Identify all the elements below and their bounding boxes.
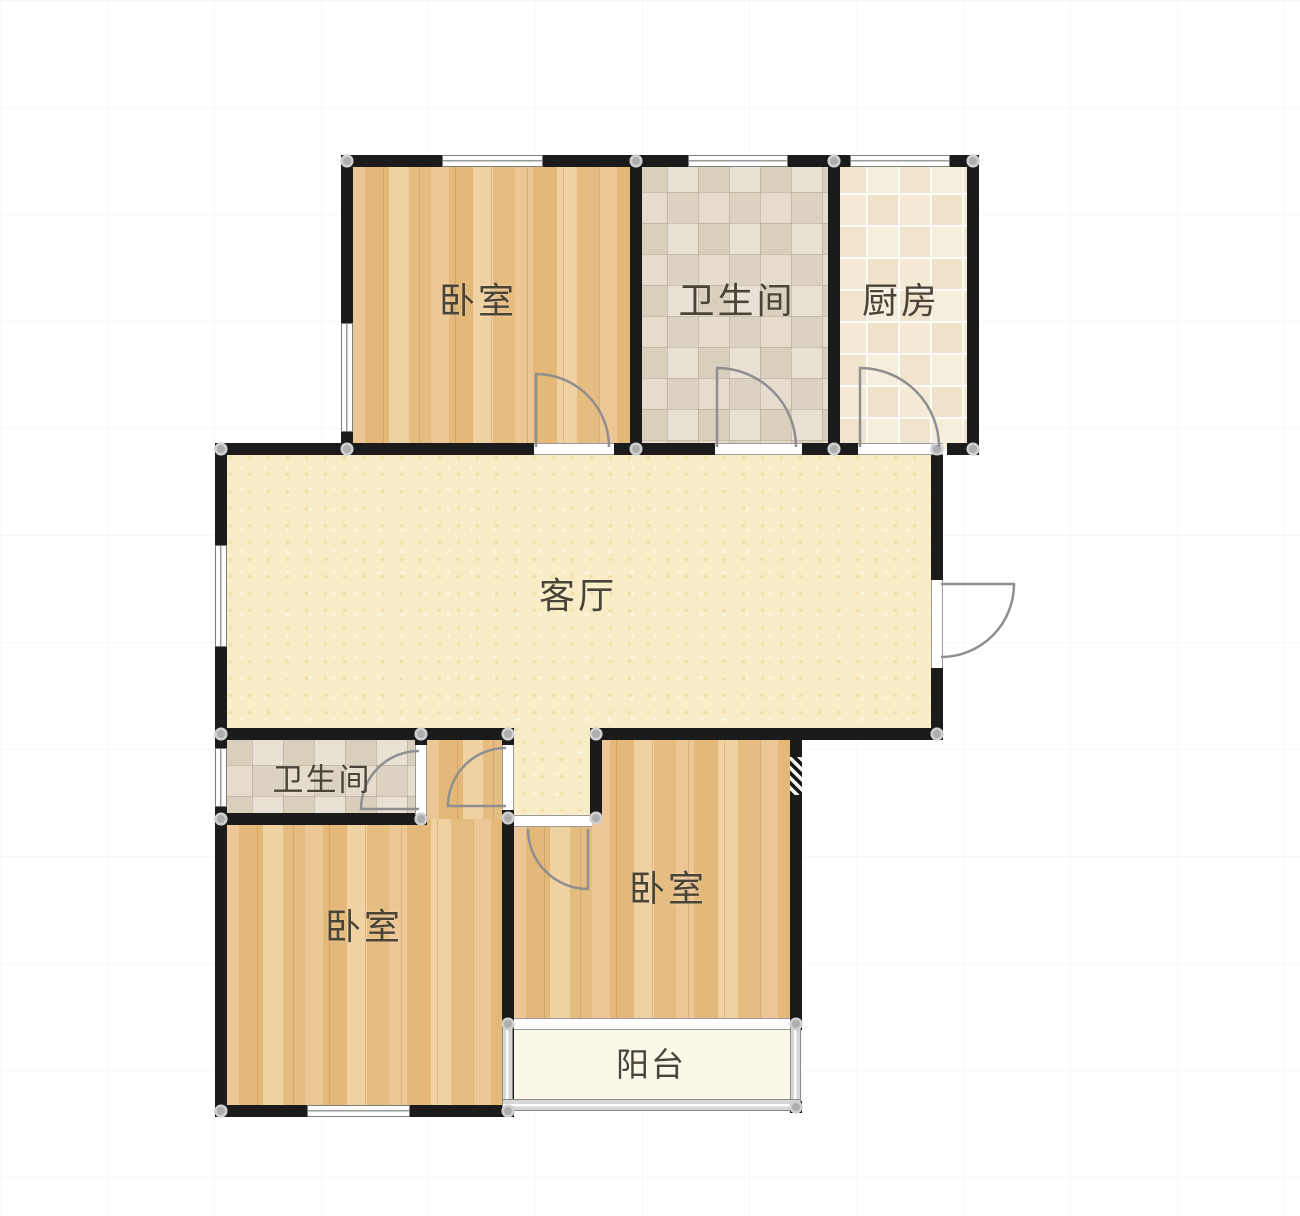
doorway-bedroom1	[534, 443, 614, 455]
window-balcony-bottom	[502, 1099, 801, 1111]
flue-hatch	[790, 757, 802, 795]
room-label-living-room: 客厅	[539, 567, 617, 619]
doorway-balcony	[514, 1018, 790, 1030]
wall-joint	[502, 728, 515, 741]
wall-joint	[502, 812, 515, 825]
window-bathroom2-left	[215, 748, 227, 807]
wall-joint	[590, 728, 603, 741]
window-balcony-right	[790, 1024, 801, 1101]
wall-joint	[790, 1101, 803, 1114]
room-label-bedroom-lower-right: 卧室	[629, 860, 707, 912]
wall-living-top-a	[215, 443, 534, 455]
wall-joint	[828, 155, 841, 168]
room-label-kitchen: 厨房	[862, 272, 940, 324]
doorway-bedroom3	[514, 815, 592, 827]
wall-joint	[215, 813, 228, 826]
wall-joint	[630, 443, 643, 456]
window-bathroom1-top	[688, 155, 788, 167]
window-bedroom2-bottom	[307, 1105, 410, 1117]
wall-kitchen-right	[967, 155, 979, 455]
room-label-bathroom-lower: 卫生间	[273, 755, 372, 800]
room-label-bedroom-lower-left: 卧室	[325, 898, 403, 950]
wall-hall-right	[590, 728, 602, 821]
wall-joint	[502, 1018, 515, 1031]
wall-joint	[215, 728, 228, 741]
window-living-left	[215, 545, 227, 647]
room-floor-bedroom-lower-left-strip	[421, 734, 508, 825]
wall-living-bottom-b	[592, 728, 943, 740]
wall-joint	[630, 155, 643, 168]
wall-joint	[341, 155, 354, 168]
wall-joint	[590, 812, 603, 825]
wall-joint	[790, 1018, 803, 1031]
room-label-balcony: 阳台	[616, 1038, 686, 1086]
floor-plan-canvas: 卧室 卫生间 厨房 客厅 卫生间 卧室 卧室 阳台	[0, 0, 1300, 1216]
doorway-bathroom2	[415, 745, 427, 815]
door-swing-entry	[941, 584, 1014, 657]
wall-joint	[415, 728, 428, 741]
wall-joint	[828, 443, 841, 456]
hallway-floor	[514, 734, 592, 821]
wall-joint	[967, 155, 980, 168]
window-kitchen-top	[850, 155, 950, 167]
room-label-bathroom-top: 卫生间	[678, 272, 795, 324]
wall-joint	[341, 443, 354, 456]
window-bedroom1-left	[341, 323, 353, 432]
room-floor-bedroom-lower-left	[221, 819, 508, 1111]
window-bedroom1-top	[442, 155, 543, 167]
window-balcony-left	[502, 1024, 513, 1105]
wall-living-right-a	[931, 443, 943, 580]
wall-bathroom1-kitchen	[828, 155, 840, 455]
doorway-entry	[931, 580, 943, 668]
wall-living-bottom-a	[215, 728, 514, 740]
wall-joint	[931, 728, 944, 741]
wall-joint	[931, 443, 944, 456]
wall-joint	[415, 813, 428, 826]
wall-joint	[215, 1105, 228, 1118]
room-label-bedroom-top-left: 卧室	[439, 272, 517, 324]
doorway-bathroom1	[715, 443, 802, 455]
doorway-bedroom2	[502, 745, 514, 810]
wall-joint	[502, 1105, 515, 1118]
wall-joint	[215, 443, 228, 456]
wall-bathroom2-bottom	[215, 813, 427, 825]
wall-joint	[967, 443, 980, 456]
wall-bedroom1-bathroom1	[630, 155, 642, 455]
